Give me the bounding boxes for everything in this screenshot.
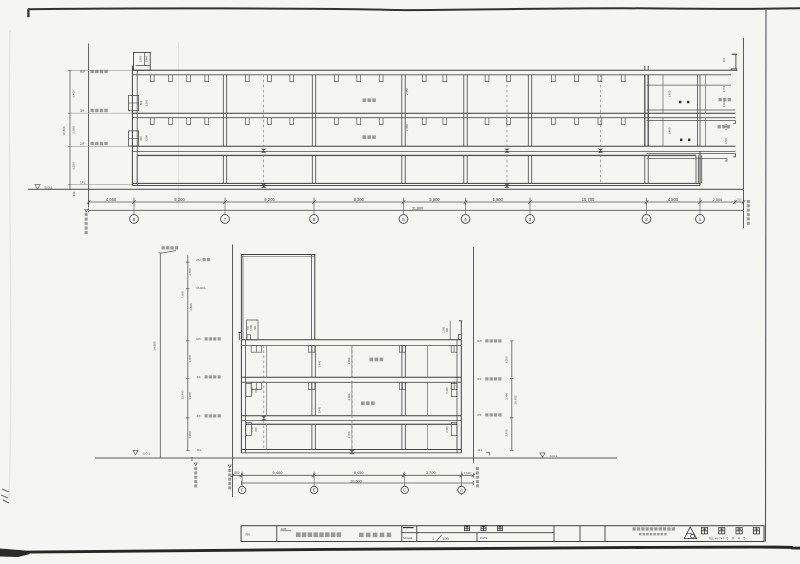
svg-text:800: 800 [139,100,143,105]
svg-text:1,160: 1,160 [464,471,471,475]
svg-text:3,200: 3,200 [72,162,76,170]
svg-text:7,600: 7,600 [181,291,185,299]
svg-text:No.: No. [246,533,251,537]
svg-text:R/F: R/F [477,339,482,343]
svg-text:7: 7 [224,217,227,223]
svg-text:2,400: 2,400 [446,426,449,433]
svg-text:14,350: 14,350 [153,341,157,351]
svg-text:3: 3 [529,217,532,223]
svg-text:300: 300 [723,57,726,62]
svg-text:1FL: 1FL [197,448,203,452]
svg-text:3,760: 3,760 [505,429,509,437]
svg-text:10,400: 10,400 [181,390,185,399]
svg-text:8,450: 8,450 [354,470,365,475]
svg-text:8: 8 [133,217,136,223]
svg-text:1,000: 1,000 [250,324,253,331]
svg-text:2,450: 2,450 [405,88,409,95]
svg-text:1,400: 1,400 [668,90,672,97]
svg-text:1,300: 1,300 [145,135,149,142]
svg-text:3/F: 3/F [80,109,85,113]
svg-text:1FL: 1FL [477,448,483,452]
svg-text:1,800: 1,800 [144,55,148,62]
svg-text:S.G.L: S.G.L [550,454,558,458]
svg-text:3,050: 3,050 [505,356,509,364]
svg-text:6: 6 [313,217,316,223]
svg-text:R/F: R/F [80,70,85,74]
svg-text:1,300: 1,300 [145,99,149,106]
svg-text:1,500: 1,500 [251,426,254,433]
svg-text:2/F: 2/F [80,142,85,146]
svg-text:TEL 40-747: TEL 40-747 [709,537,725,541]
svg-text:2,700: 2,700 [347,431,351,438]
svg-text:800: 800 [255,427,258,432]
svg-text:3,380: 3,380 [505,392,509,400]
svg-text:R/F: R/F [197,337,202,341]
svg-text:6,800: 6,800 [189,303,193,311]
svg-text:5,800: 5,800 [493,197,504,202]
svg-text:2,440: 2,440 [318,360,322,367]
svg-text:3,700: 3,700 [426,470,437,475]
svg-text:1: 1 [699,217,702,223]
svg-text:10,400: 10,400 [513,395,517,405]
svg-text:3,450: 3,450 [72,90,76,98]
svg-text:SCALE: SCALE [403,536,413,540]
svg-text:800: 800 [139,136,143,141]
svg-text:PH1FL: PH1FL [197,286,207,290]
svg-text:2,500: 2,500 [713,198,723,202]
svg-text:5,900: 5,900 [429,197,440,202]
svg-text:380: 380 [254,325,257,330]
svg-text:380: 380 [446,327,449,332]
svg-text:1,400: 1,400 [668,127,672,134]
svg-text:2/F: 2/F [197,414,202,418]
svg-text:3,080: 3,080 [347,393,351,400]
svg-text:600: 600 [247,325,250,330]
svg-text:950: 950 [234,471,240,475]
svg-text:4,800: 4,800 [668,197,679,202]
svg-text:2/F: 2/F [477,413,482,417]
svg-text:10,700: 10,700 [582,197,595,202]
svg-text:5: 5 [402,217,405,223]
svg-text:1,500: 1,500 [251,387,254,394]
svg-text:1FL: 1FL [80,181,86,185]
svg-text:10,400: 10,400 [62,126,66,136]
svg-text:JOB.: JOB. [281,527,288,531]
svg-text:PH: PH [197,258,201,262]
svg-text:S.G.L: S.G.L [45,185,53,189]
svg-text:600: 600 [255,388,258,393]
svg-text:C: C [403,488,406,493]
svg-text:100: 100 [442,536,449,541]
svg-text:3,050: 3,050 [347,357,351,364]
svg-text:E: E [313,488,316,493]
svg-text:3/F: 3/F [477,377,482,381]
svg-text:20,600: 20,600 [350,479,361,483]
svg-text:8,200: 8,200 [354,197,365,202]
svg-text:2,400: 2,400 [446,387,449,394]
svg-text:3,380: 3,380 [188,392,192,400]
svg-text:4,050: 4,050 [106,197,117,202]
svg-text:400: 400 [190,456,194,461]
svg-text:DATE: DATE [480,536,488,540]
svg-text:F: F [241,488,244,493]
svg-text:1,700: 1,700 [723,85,726,92]
svg-text:2: 2 [645,217,648,223]
svg-text:3,200: 3,200 [188,431,192,439]
svg-text:400: 400 [72,191,76,196]
svg-text:310: 310 [737,199,742,202]
svg-text:1,500: 1,500 [725,137,728,144]
svg-text:5,400: 5,400 [272,470,283,475]
svg-text:3,050: 3,050 [188,355,192,363]
svg-text:5 9 4 5: 5 9 4 5 [727,537,747,541]
svg-text:2,450: 2,450 [405,124,409,131]
svg-text:S.G.L: S.G.L [143,451,151,455]
svg-text:2,440: 2,440 [318,406,322,413]
svg-text:4: 4 [464,217,467,223]
svg-text:31,800: 31,800 [412,207,423,211]
svg-text:1,600: 1,600 [139,55,143,62]
svg-text:3/F: 3/F [197,375,202,379]
svg-text:A: A [460,488,463,493]
svg-text:3,390: 3,390 [72,126,76,134]
svg-text:2,600: 2,600 [188,268,192,276]
svg-text:8,200: 8,200 [264,197,275,202]
svg-text:8,300: 8,300 [174,197,185,202]
